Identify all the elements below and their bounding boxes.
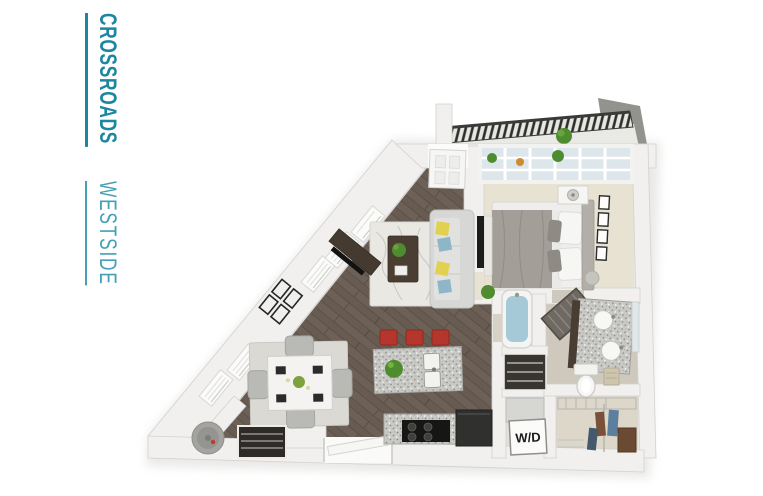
throw-pillow bbox=[437, 279, 452, 294]
sill-dish bbox=[516, 158, 524, 166]
dining-chair-bottom bbox=[286, 408, 314, 428]
bedroom-plant bbox=[481, 285, 495, 299]
place-setting bbox=[313, 366, 323, 374]
water-heater-valve bbox=[211, 440, 215, 444]
bar-stool bbox=[380, 330, 397, 345]
bar-stool bbox=[432, 330, 449, 345]
bedroom-window-wall bbox=[480, 146, 632, 182]
entry-door bbox=[429, 149, 466, 188]
bathtub-water bbox=[506, 296, 528, 342]
accent-pillow bbox=[547, 249, 562, 272]
burner bbox=[424, 423, 432, 431]
logo-secondary-text: WESTSIDE bbox=[85, 181, 121, 286]
sill-plant bbox=[487, 153, 497, 163]
throw-pillow bbox=[435, 261, 450, 276]
throw-pillow bbox=[437, 237, 452, 252]
burner bbox=[408, 423, 416, 431]
washer-dryer-unit bbox=[506, 398, 544, 422]
bathroom-mirror bbox=[632, 302, 639, 352]
tub-faucet bbox=[515, 293, 519, 297]
entry-closet bbox=[238, 426, 286, 458]
hanging-clothes bbox=[607, 410, 619, 437]
bedroom-pouf bbox=[585, 271, 599, 285]
water-heater-cap bbox=[205, 435, 211, 441]
refrigerator bbox=[456, 410, 492, 446]
throw-pillow bbox=[435, 221, 450, 236]
vanity bbox=[568, 298, 635, 374]
lamp-finial bbox=[571, 193, 575, 197]
balcony-plant-highlight bbox=[558, 130, 565, 137]
bedroom-tv bbox=[477, 216, 484, 268]
sofa bbox=[430, 210, 474, 308]
coffee-table-plant bbox=[392, 243, 406, 257]
utility-area bbox=[192, 422, 286, 458]
balcony-plant bbox=[556, 128, 572, 144]
accent-pillow bbox=[547, 219, 562, 242]
bedroom bbox=[477, 186, 610, 299]
place-setting bbox=[276, 366, 286, 374]
toilet-seat bbox=[581, 379, 591, 393]
dining-chair-right bbox=[332, 369, 352, 397]
washer-dryer-sign: W/D bbox=[509, 419, 547, 455]
linen-closet bbox=[504, 354, 546, 390]
dining-chair-top bbox=[285, 336, 313, 356]
washer-dryer-closet: W/D bbox=[506, 398, 547, 455]
island-sink bbox=[424, 371, 441, 388]
burner bbox=[424, 433, 432, 441]
property-logo: CROSSROADS WESTSIDE bbox=[85, 13, 121, 327]
kitchen-island bbox=[373, 346, 462, 393]
dining-area bbox=[247, 335, 353, 429]
entry-stub-wall bbox=[286, 426, 326, 448]
coffee-table-tray bbox=[395, 266, 407, 275]
dining-chair-left bbox=[248, 371, 268, 399]
bar-stool bbox=[406, 330, 423, 345]
towel-basket bbox=[604, 368, 619, 385]
bed-bench bbox=[484, 216, 492, 276]
place-setting bbox=[276, 394, 286, 402]
burner bbox=[408, 433, 416, 441]
sill-plant bbox=[552, 150, 564, 162]
tub-bath-divider-wall bbox=[532, 294, 546, 354]
island-sink bbox=[423, 353, 440, 370]
washer-dryer-label: W/D bbox=[515, 429, 541, 445]
floor-plan-page: CROSSROADS WESTSIDE bbox=[0, 0, 763, 496]
logo-primary-text: CROSSROADS bbox=[85, 13, 121, 147]
place-setting bbox=[313, 394, 323, 402]
closet-dresser bbox=[618, 428, 636, 452]
plant-highlight bbox=[393, 244, 398, 249]
